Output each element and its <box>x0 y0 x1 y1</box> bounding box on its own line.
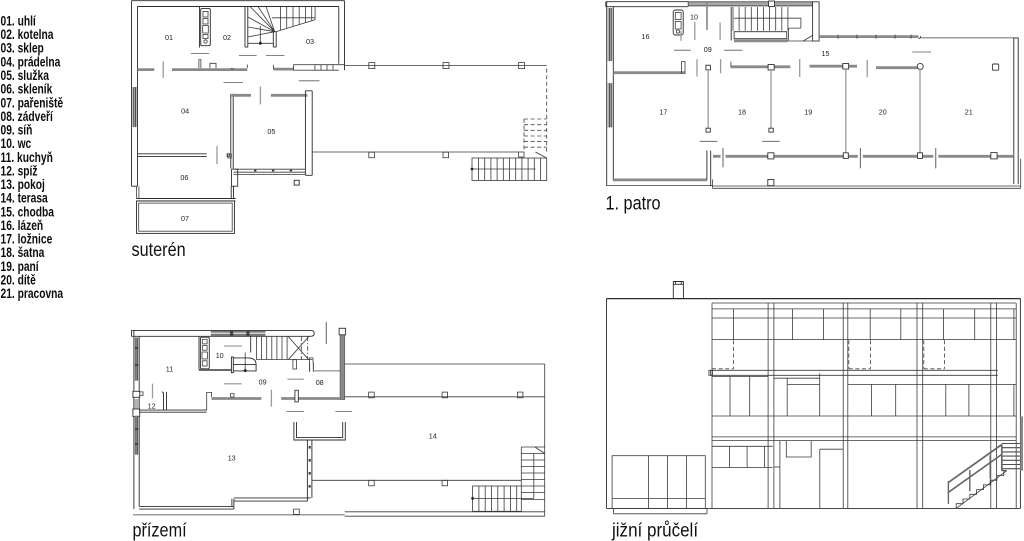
svg-text:06: 06 <box>180 173 188 182</box>
svg-text:21: 21 <box>965 107 973 116</box>
svg-text:14: 14 <box>429 432 437 441</box>
svg-text:12: 12 <box>148 401 156 410</box>
svg-text:1. patro: 1. patro <box>606 192 661 214</box>
svg-text:05: 05 <box>267 127 275 136</box>
svg-text:08: 08 <box>316 378 324 387</box>
svg-text:19: 19 <box>804 107 812 116</box>
svg-text:09: 09 <box>259 378 267 387</box>
svg-text:02: 02 <box>223 33 231 42</box>
svg-text:11: 11 <box>166 365 173 374</box>
svg-text:04: 04 <box>181 106 189 115</box>
svg-text:13: 13 <box>228 454 236 463</box>
svg-text:10: 10 <box>216 351 224 360</box>
svg-text:suterén: suterén <box>132 238 186 260</box>
svg-text:21. pracovna: 21. pracovna <box>1 286 64 302</box>
svg-text:01: 01 <box>165 33 173 42</box>
svg-text:přízemí: přízemí <box>133 519 187 541</box>
svg-text:16: 16 <box>642 32 650 41</box>
svg-text:18: 18 <box>738 107 746 116</box>
svg-text:09: 09 <box>704 45 712 54</box>
svg-text:03: 03 <box>306 37 314 46</box>
svg-text:07: 07 <box>181 214 189 223</box>
svg-text:20: 20 <box>879 107 887 116</box>
svg-text:10: 10 <box>690 13 698 22</box>
svg-text:17: 17 <box>659 107 667 116</box>
svg-text:jižní průčelí: jižní průčelí <box>611 518 699 541</box>
svg-text:15: 15 <box>822 49 830 58</box>
